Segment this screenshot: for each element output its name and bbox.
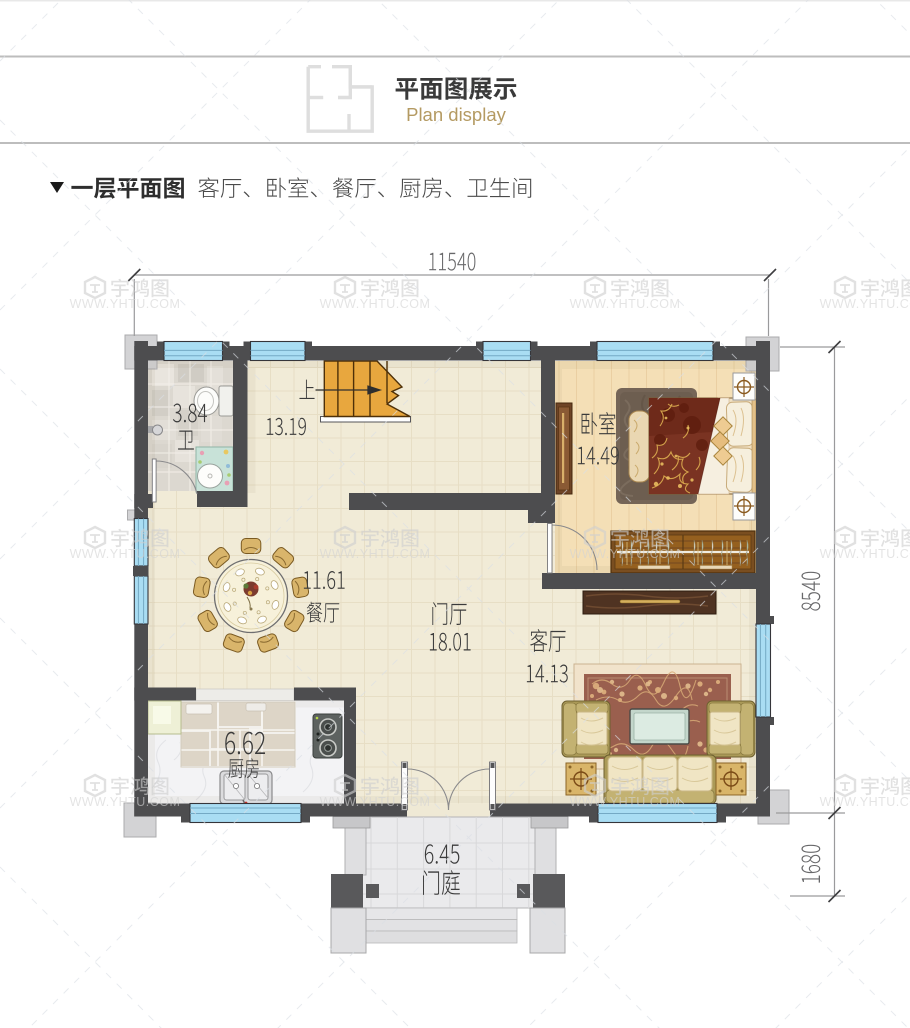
svg-text:Plan display: Plan display [406, 104, 507, 125]
